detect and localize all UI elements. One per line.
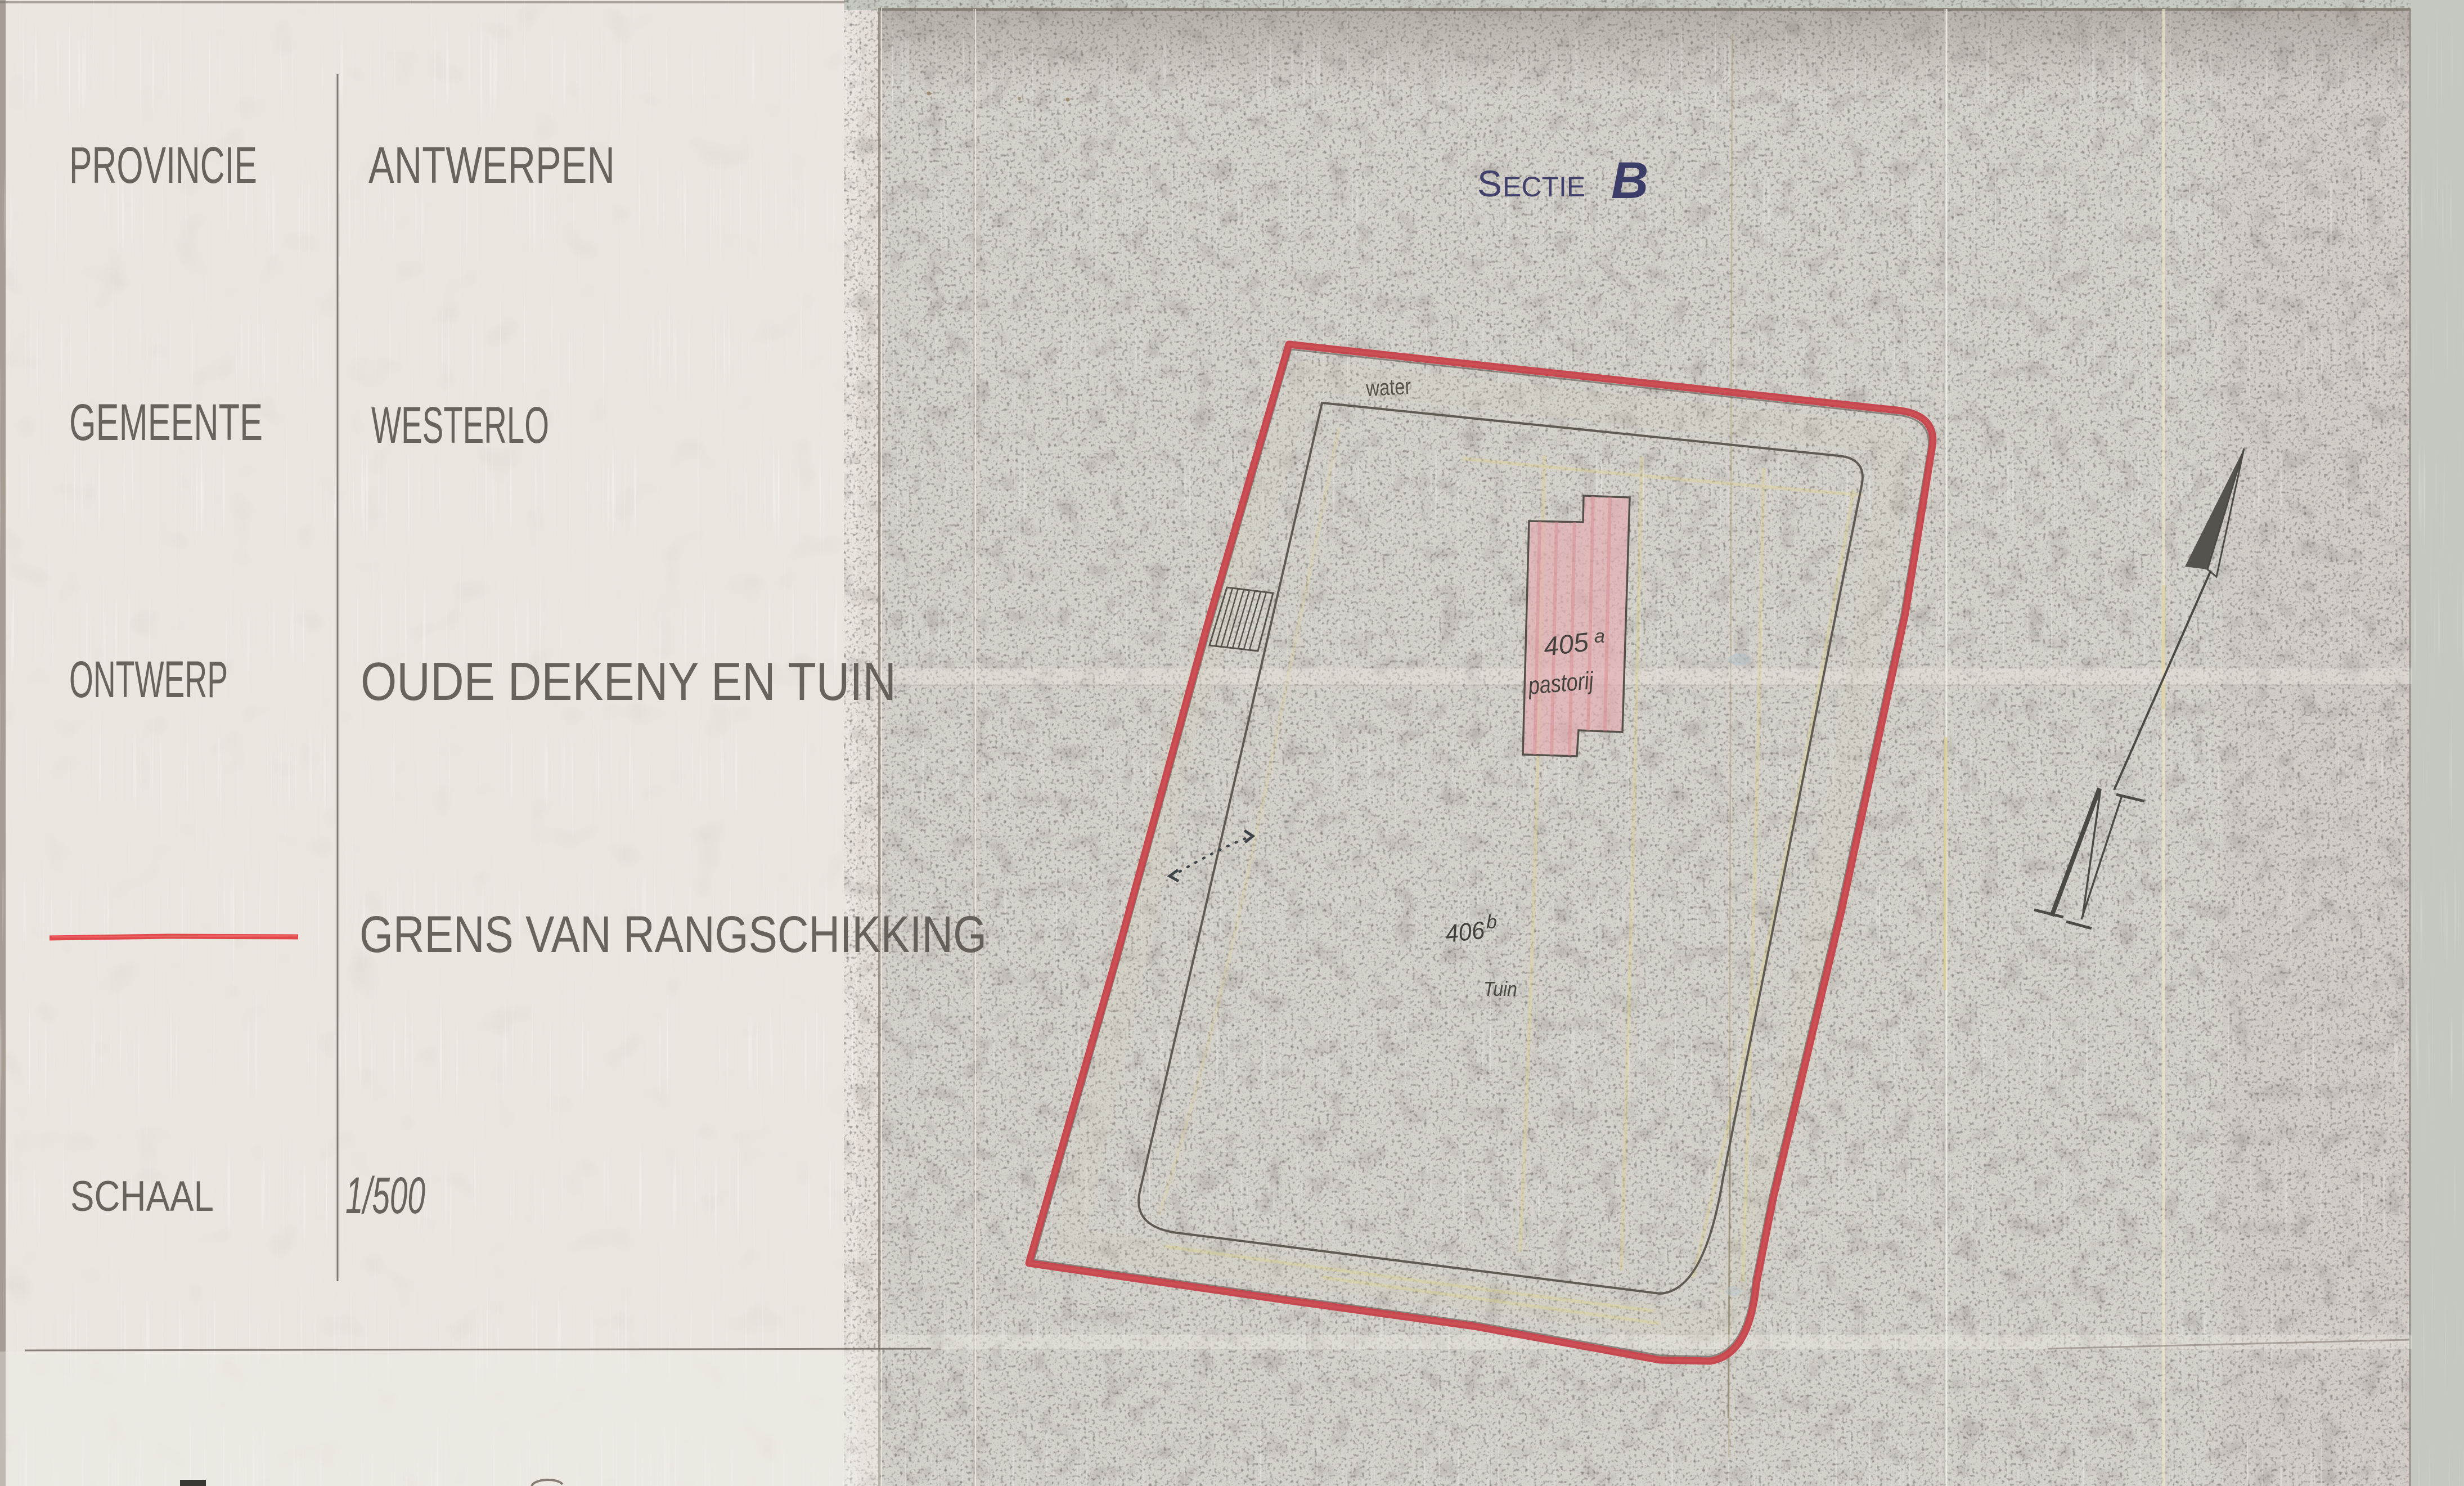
svg-text:Tuin: Tuin bbox=[1483, 977, 1517, 1000]
svg-text:PROVINCIE: PROVINCIE bbox=[69, 137, 257, 194]
svg-text:406: 406 bbox=[1444, 917, 1486, 948]
svg-text:WESTERLO: WESTERLO bbox=[371, 397, 549, 454]
svg-text:GRENS VAN RANGSCHIKKING: GRENS VAN RANGSCHIKKING bbox=[359, 906, 987, 963]
svg-text:B: B bbox=[1611, 152, 1648, 209]
svg-text:ONTWERP: ONTWERP bbox=[69, 651, 228, 708]
svg-text:pastorij: pastorij bbox=[1526, 667, 1595, 700]
svg-text:SCHAAL: SCHAAL bbox=[70, 1173, 214, 1220]
svg-text:1/500: 1/500 bbox=[345, 1167, 425, 1224]
svg-text:b: b bbox=[1486, 912, 1497, 933]
svg-text:ANTWERPEN: ANTWERPEN bbox=[368, 137, 615, 194]
svg-text:a: a bbox=[1594, 626, 1605, 647]
svg-text:water: water bbox=[1365, 374, 1411, 401]
svg-text:405: 405 bbox=[1542, 626, 1591, 661]
svg-text:GEMEENTE: GEMEENTE bbox=[69, 394, 263, 451]
svg-text:OUDE DEKENY EN TUIN: OUDE DEKENY EN TUIN bbox=[361, 652, 896, 712]
